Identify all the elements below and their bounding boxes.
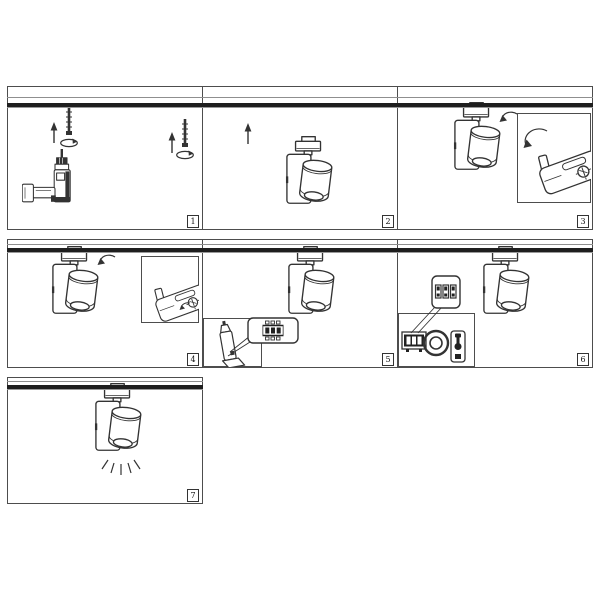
dip-switch-callout <box>432 276 460 308</box>
track-light-fixture-icon <box>454 103 500 170</box>
panel-number-badge: 6 <box>577 353 589 366</box>
adapter-screw-detail-inset <box>142 257 203 323</box>
power-drill-icon <box>22 149 70 202</box>
dip-switch-module-icon <box>402 332 426 352</box>
panel-number-badge: 4 <box>187 353 199 366</box>
step-panel-5: 5 <box>202 239 398 368</box>
track-light-fixture-icon <box>286 137 332 204</box>
mounting-screw-icon <box>61 107 78 147</box>
step-panel-7: 7 <box>7 377 203 504</box>
ceiling-track-line <box>7 97 593 98</box>
controls-inset <box>399 314 475 367</box>
toggle-switch-icon <box>451 331 465 362</box>
up-arrow-icon <box>245 123 252 144</box>
ceiling-track-line <box>7 381 203 382</box>
rotate-arrow-icon <box>98 255 116 265</box>
dip-switch-icon <box>263 321 284 340</box>
track-light-fixture-icon <box>288 247 334 314</box>
adapter-latch-detail-inset <box>518 114 593 203</box>
light-rays-icon <box>102 460 140 475</box>
ceiling-track-rail <box>7 385 203 390</box>
ceiling-track-rail <box>7 103 593 108</box>
up-arrow-icon <box>51 122 58 143</box>
panel-number-badge: 2 <box>382 215 394 228</box>
track-light-fixture-icon <box>52 247 98 314</box>
instruction-sheet: 1 2 3 <box>0 0 600 600</box>
rotate-arrow-icon <box>500 112 518 122</box>
up-arrow-icon <box>169 132 176 153</box>
mounting-screw-icon <box>177 119 194 159</box>
track-light-fixture-icon <box>483 247 529 314</box>
panel-number-badge: 5 <box>382 353 394 366</box>
step-panel-4: 4 <box>7 239 203 368</box>
track-light-fixture-icon <box>95 384 141 451</box>
panel-number-badge: 3 <box>577 215 589 228</box>
dip-switch-callout <box>248 318 298 343</box>
panel-number-badge: 7 <box>187 489 199 502</box>
step-panel-6: 6 <box>397 239 593 368</box>
panel-number-badge: 1 <box>187 215 199 228</box>
ceiling-track-rail <box>7 248 593 253</box>
ceiling-track-line <box>7 244 593 245</box>
